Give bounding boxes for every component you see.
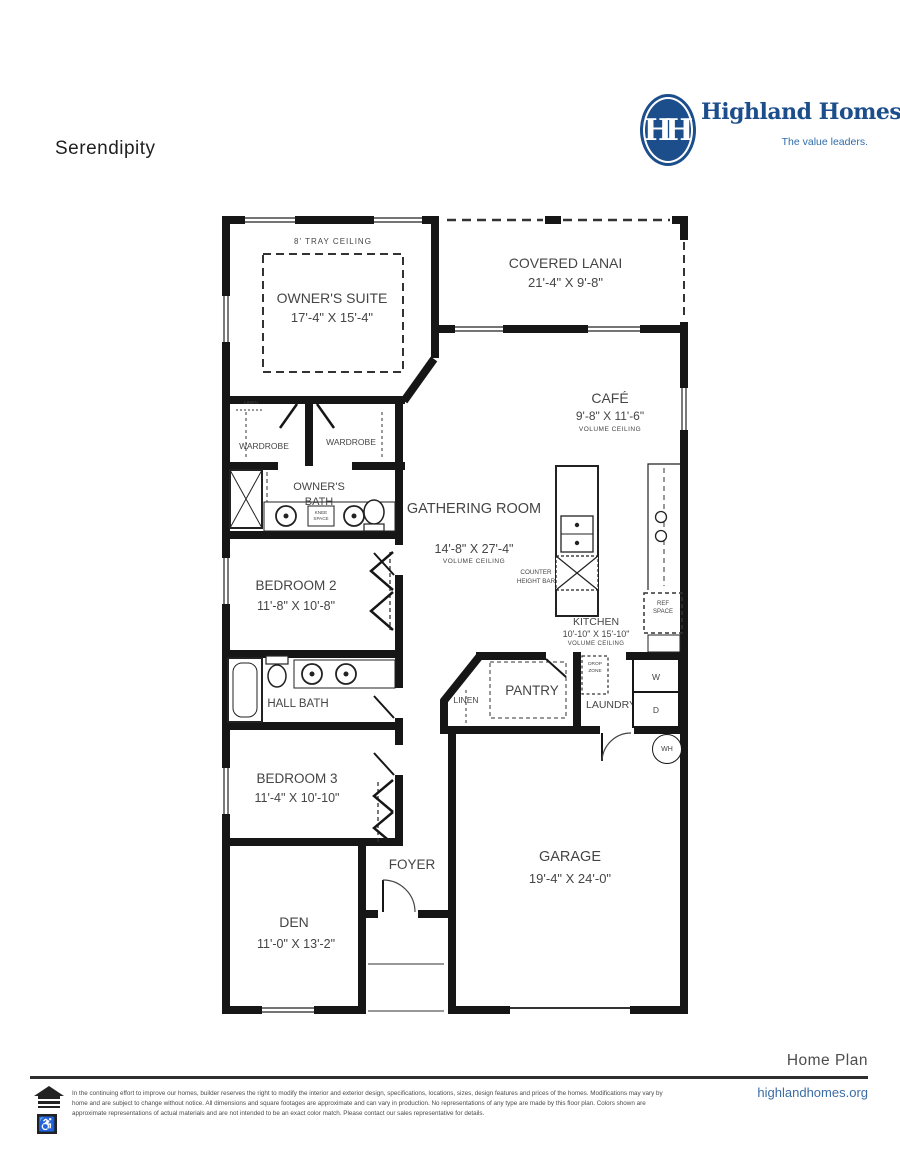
wheelchair-icon: ♿: [37, 1114, 57, 1134]
water-heater: WH: [652, 734, 682, 764]
toilet-tank: [364, 524, 384, 531]
label-den-dims: 11'-0" X 13'-2": [240, 937, 352, 953]
wall: [452, 1006, 510, 1014]
window: [222, 558, 230, 604]
wall: [448, 726, 456, 1014]
page: Serendipity HH Highland Homes The value …: [0, 0, 900, 1164]
label-linen-hall: LINEN: [443, 695, 489, 706]
washer-box: W: [632, 658, 680, 695]
wall: [222, 722, 403, 730]
toilet-tank: [266, 656, 288, 664]
bifold-door: [374, 780, 393, 812]
disclaimer-text: In the continuing effort to improve our …: [72, 1089, 676, 1120]
label-kitchen: KITCHEN: [552, 616, 640, 629]
wall: [395, 775, 403, 846]
label-wardrobe-1: WARDROBE: [231, 441, 297, 452]
footer-label: Home Plan: [700, 1052, 868, 1070]
label-owners-suite: OWNER'S SUITE: [262, 290, 402, 308]
window: [680, 388, 688, 430]
door-leaf: [317, 404, 334, 428]
label-bedroom-3: BEDROOM 3: [228, 771, 366, 788]
door-leaf: [374, 553, 394, 575]
sink-drain: [575, 523, 579, 527]
wall: [395, 575, 403, 688]
footer-divider: [30, 1076, 868, 1079]
label-pantry: PANTRY: [492, 683, 572, 700]
toilet: [268, 665, 286, 687]
dryer-box: D: [632, 691, 680, 728]
door-leaf: [374, 753, 394, 775]
label-cafe-ceiling: VOLUME CEILING: [552, 426, 668, 434]
wall: [222, 838, 403, 846]
window: [374, 216, 422, 224]
label-gathering-room-dims: 14'-8" X 27'-4": [404, 542, 544, 558]
label-cafe-dims: 9'-8" X 11'-6": [552, 409, 668, 424]
label-covered-lanai-dims: 21'-4" X 9'-8": [478, 275, 653, 291]
door-leaf: [374, 696, 394, 718]
door-swing-arc: [383, 880, 415, 912]
label-den: DEN: [262, 914, 326, 932]
label-covered-lanai: COVERED LANAI: [478, 255, 653, 273]
wall: [630, 1006, 688, 1014]
label-counter-height-bar: COUNTER HEIGHT BAR: [514, 568, 558, 586]
wall: [573, 652, 581, 734]
cooktop-burner: [656, 512, 667, 523]
sink-drain: [344, 672, 349, 677]
label-owners-bath: OWNER'S BATH: [281, 480, 357, 510]
bathtub-basin: [233, 663, 257, 717]
label-owners-suite-dims: 17'-4" X 15'-4": [262, 310, 402, 326]
label-garage-dims: 19'-4" X 24'-0": [504, 871, 636, 887]
wall: [545, 216, 561, 224]
wall: [360, 910, 378, 918]
label-kitchen-ceiling: VOLUME CEILING: [548, 641, 644, 649]
wall: [222, 462, 278, 470]
sink-drain: [352, 514, 357, 519]
wall: [222, 531, 403, 539]
kitchen-counter: [648, 635, 680, 652]
sink-drain: [575, 541, 579, 545]
label-bedroom-2-dims: 11'-8" X 10'-8": [226, 599, 366, 615]
label-wardrobe-2: WARDROBE: [318, 437, 384, 448]
floor-plan-drawing: [0, 0, 900, 1164]
wall: [395, 404, 403, 545]
sink-drain: [284, 514, 289, 519]
sliding-door: [455, 325, 503, 333]
label-garage: GARAGE: [514, 848, 626, 866]
wall: [476, 652, 546, 660]
wall: [222, 650, 403, 658]
wall: [418, 910, 452, 918]
wall-angled: [404, 359, 434, 401]
equal-housing-body: [38, 1096, 60, 1108]
window: [588, 325, 640, 333]
label-foyer: FOYER: [380, 857, 444, 874]
label-bedroom-3-dims: 11'-4" X 10'-10": [220, 791, 374, 807]
label-knee-space: KNEE SPACE: [312, 510, 330, 522]
label-drop-zone: DROP ZONE: [586, 662, 604, 675]
window: [262, 1006, 314, 1014]
wall: [431, 216, 439, 358]
equal-housing-roof: [34, 1086, 64, 1096]
label-cafe: CAFÉ: [560, 390, 660, 408]
door-swing-arc: [602, 733, 631, 761]
label-gathering-room: GATHERING ROOM: [404, 500, 544, 519]
walls: [222, 216, 688, 1014]
window: [222, 296, 230, 342]
label-linen-small: LINEN: [236, 400, 266, 406]
wall: [680, 216, 688, 1014]
label-hall-bath: HALL BATH: [256, 697, 340, 711]
equal-housing-icon: [34, 1086, 64, 1110]
label-kitchen-dims: 10'-10" X 15'-10": [540, 629, 652, 640]
wall: [358, 846, 366, 1014]
label-ref-space: REF SPACE: [650, 600, 676, 616]
label-tray-ceiling: 8' TRAY CEILING: [263, 237, 403, 247]
label-bedroom-2: BEDROOM 2: [230, 578, 362, 595]
label-gathering-room-ceiling: VOLUME CEILING: [404, 558, 544, 566]
wall: [395, 718, 403, 745]
window: [245, 216, 295, 224]
wall: [305, 404, 313, 466]
cooktop-burner: [656, 531, 667, 542]
website-link[interactable]: highlandhomes.org: [700, 1085, 868, 1100]
door-leaf: [280, 404, 297, 428]
sink-drain: [310, 672, 315, 677]
toilet: [364, 500, 384, 524]
